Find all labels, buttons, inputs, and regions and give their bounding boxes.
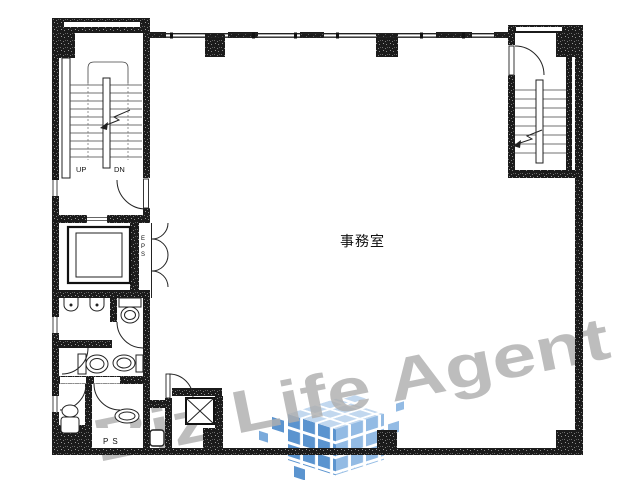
wall-corridor-stub — [150, 400, 165, 408]
door-leaf-landing — [144, 179, 149, 208]
elevator-doors — [152, 223, 168, 287]
mullion — [336, 33, 339, 39]
floor-plan-page: Biz Life Agent — [0, 0, 640, 480]
elevator: E P S — [68, 223, 168, 298]
stairwell-left: UP DN — [62, 58, 149, 209]
door-arc-landing — [117, 180, 146, 209]
wall-annex-top — [172, 388, 222, 396]
wall-right-block-bottom — [508, 170, 583, 178]
column-bottom-1 — [203, 428, 223, 448]
wall-stall-divider-2 — [85, 384, 92, 428]
lavatory — [61, 405, 79, 433]
stair-down-label: DN — [114, 165, 125, 174]
room-label: 事務室 — [340, 233, 385, 249]
wall-right — [575, 25, 583, 455]
stair-rail-left — [103, 78, 110, 168]
toilet — [115, 409, 139, 423]
column-stair-right — [556, 33, 576, 57]
window-left-2 — [51, 317, 60, 333]
door-gap-wc-2 — [94, 377, 120, 384]
column-bottom-3 — [556, 430, 575, 448]
wall-annex-left — [165, 398, 172, 448]
door-leaf-annex — [166, 374, 170, 398]
stairwell-right — [509, 46, 566, 163]
floor-plan: Biz Life Agent — [0, 0, 640, 480]
stair-up-label: UP — [76, 165, 86, 174]
shaft-box — [186, 398, 214, 424]
toilet — [119, 298, 141, 323]
mullion — [294, 33, 297, 39]
wall-core-right-lower — [143, 298, 150, 455]
mullion — [420, 33, 423, 39]
stair-rail-right — [536, 80, 543, 163]
eps-label-p: P — [141, 244, 145, 250]
door-leaf-right-stairs — [509, 46, 514, 75]
window-strip-top-right — [516, 27, 562, 31]
window-strip-top-left — [64, 22, 140, 27]
utility-sink — [150, 430, 164, 446]
door-arc-stall-1 — [117, 322, 143, 348]
wall-left — [52, 18, 59, 455]
eps-label-e: E — [141, 236, 145, 242]
mullion — [252, 33, 255, 39]
column-stair-left — [53, 33, 75, 58]
eps-label-s: S — [141, 252, 145, 258]
wall-bottom — [52, 448, 583, 455]
wall-annex-right — [215, 396, 223, 430]
wall-core-right-upper — [143, 18, 150, 178]
door-gap-wc-1 — [60, 377, 86, 384]
stair-duct — [62, 58, 70, 178]
opening-landing — [87, 215, 107, 223]
mullion — [170, 33, 173, 39]
wall-elevator-right — [130, 223, 139, 298]
window-left-1 — [51, 180, 60, 196]
toilet — [113, 355, 143, 372]
mullion — [462, 33, 465, 39]
wall-toilet-top — [52, 290, 150, 298]
urinal — [64, 298, 78, 311]
wall-right-block-inner — [566, 57, 572, 170]
urinal — [90, 298, 104, 311]
window-left-3 — [51, 396, 60, 412]
wall-toilet-mid-1 — [52, 340, 112, 348]
door-arc-right-stairs — [515, 46, 544, 75]
ps-label: PS — [103, 437, 122, 446]
elevator-shaft — [68, 227, 130, 283]
wall-stall-divider-1 — [110, 290, 117, 322]
column-bottom-2 — [377, 430, 397, 448]
